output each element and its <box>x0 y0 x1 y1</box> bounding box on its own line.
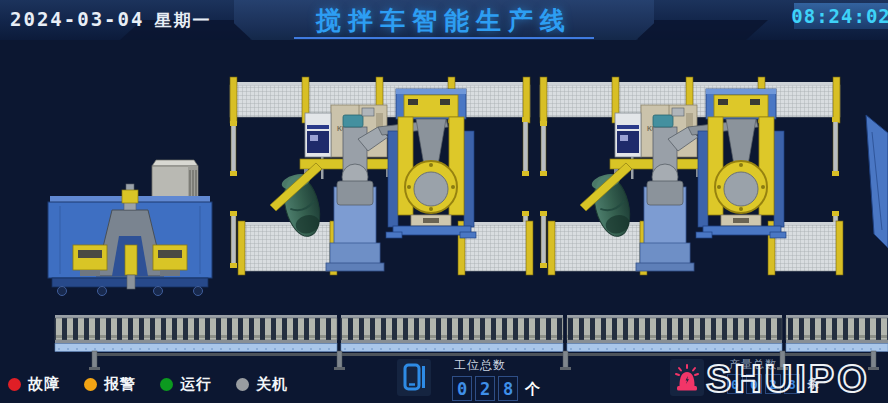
alarm-beacon-icon <box>674 364 700 392</box>
station-digit: 8 <box>498 376 518 401</box>
tablet-counter-icon <box>403 363 426 392</box>
date-text: 2024-03-04 <box>10 8 144 30</box>
page-title: 搅拌车智能生产线 <box>316 4 572 37</box>
station-counter-tile[interactable] <box>397 359 431 396</box>
legend-item-off: 关机 <box>236 375 288 394</box>
fault-label: 故障 <box>28 375 60 394</box>
production-line-dashboard: 搅拌车智能生产线 2024-03-04 星期一 08:24:02 <box>0 0 888 403</box>
status-legend: 故障 报警 运行 关机 <box>8 375 288 394</box>
legend-item-fault: 故障 <box>8 375 60 394</box>
robot-cell-2 <box>540 77 843 275</box>
conveyor-segment <box>341 315 563 352</box>
running-status-dot <box>160 378 173 391</box>
fault-status-dot <box>8 378 21 391</box>
conveyor-segment <box>55 315 337 352</box>
conveyor-segment <box>567 315 782 352</box>
station-counter: 工位总数 0 2 8 个 <box>452 357 540 401</box>
clock-text: 08:24:02 <box>791 5 888 27</box>
factory-scene: KUKA <box>0 40 888 370</box>
fixture-machine <box>48 160 212 296</box>
alarm-label: 报警 <box>104 375 136 394</box>
edge-machine <box>866 115 888 248</box>
station-digit: 2 <box>475 376 495 401</box>
running-label: 运行 <box>180 375 212 394</box>
off-label: 关机 <box>256 375 288 394</box>
conveyor-segment <box>786 315 888 352</box>
station-digit: 0 <box>452 376 472 401</box>
station-counter-unit: 个 <box>525 380 540 401</box>
legend-item-alarm: 报警 <box>84 375 136 394</box>
header-bar: 搅拌车智能生产线 2024-03-04 星期一 08:24:02 <box>0 0 888 40</box>
off-status-dot <box>236 378 249 391</box>
title-plate: 搅拌车智能生产线 <box>234 0 654 40</box>
header-angle-right <box>638 20 768 40</box>
clock-box: 08:24:02 <box>794 3 888 29</box>
shuipo-logo: SHUIPO <box>706 358 886 400</box>
legend-item-running: 运行 <box>160 375 212 394</box>
title-underline <box>294 37 594 39</box>
robot-cell-1 <box>230 77 533 275</box>
weekday-text: 星期一 <box>154 9 211 32</box>
datetime: 2024-03-04 星期一 <box>10 8 211 32</box>
alarm-status-dot <box>84 378 97 391</box>
alarm-beacon-tile[interactable] <box>670 359 704 396</box>
station-counter-digits: 0 2 8 个 <box>452 376 540 401</box>
station-counter-label: 工位总数 <box>454 357 540 374</box>
